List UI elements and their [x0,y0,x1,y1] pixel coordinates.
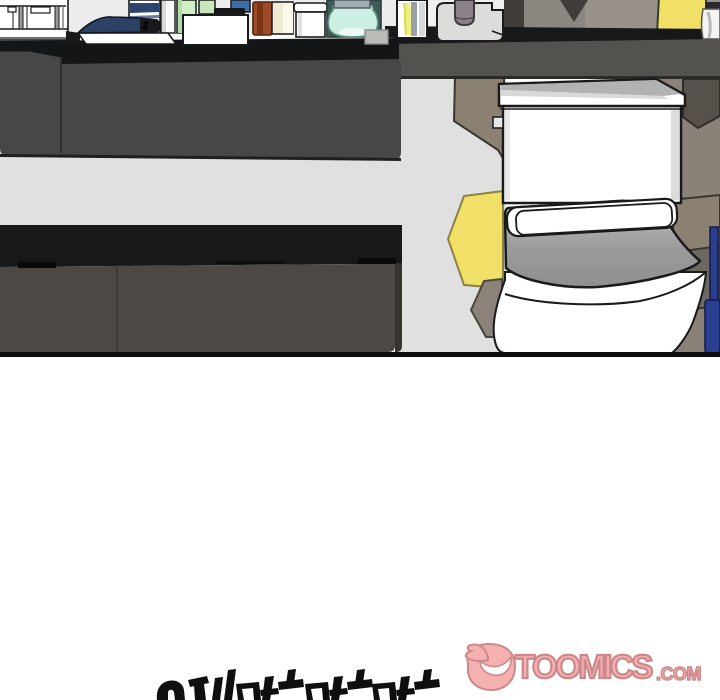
svg-text:.COM: .COM [656,664,701,684]
svg-text:TOOMICS: TOOMICS [515,648,652,685]
